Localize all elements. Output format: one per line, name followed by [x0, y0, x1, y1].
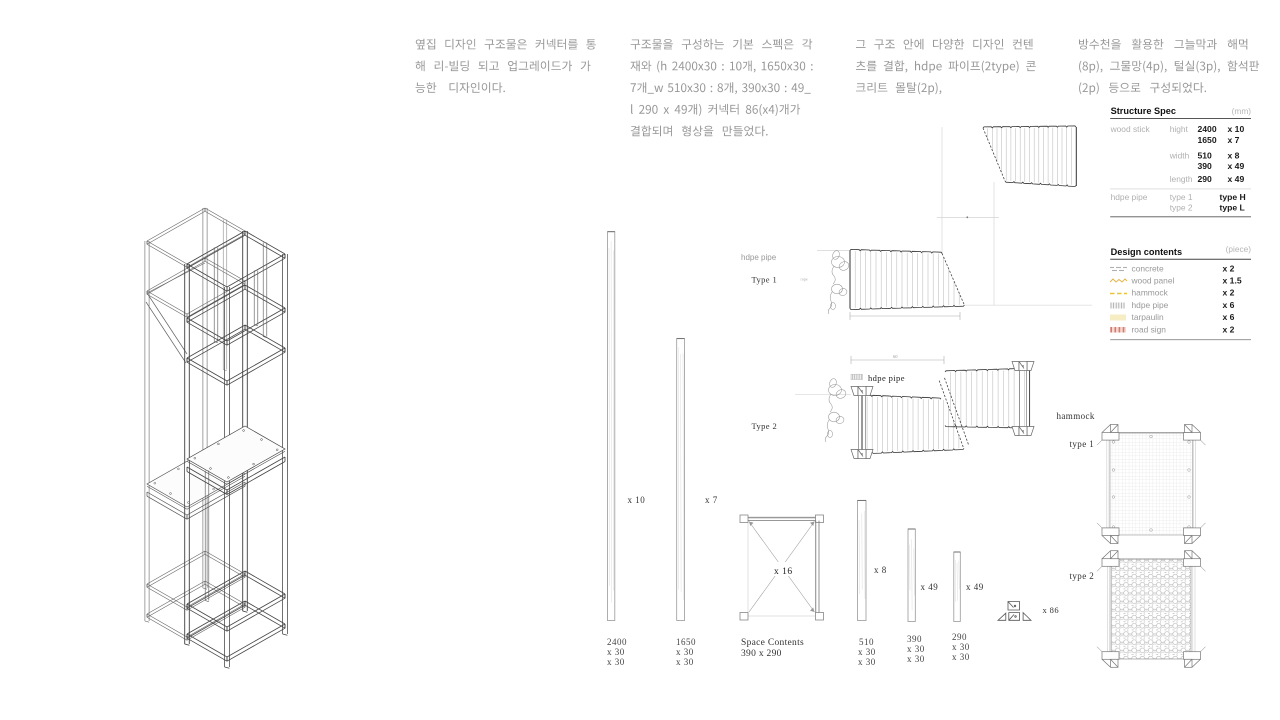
svg-text:type 1: type 1: [1170, 192, 1193, 202]
svg-text:x 30: x 30: [676, 657, 694, 667]
svg-text:type 2: type 2: [1170, 203, 1193, 213]
svg-text:(mm): (mm): [1232, 106, 1252, 116]
svg-text:x 6: x 6: [1223, 312, 1235, 322]
svg-text:290: 290: [1198, 174, 1213, 184]
svg-text:hdpe pipe: hdpe pipe: [868, 373, 905, 383]
svg-text:290: 290: [952, 632, 967, 642]
svg-text:Type 1: Type 1: [752, 275, 778, 285]
svg-text:hdpe pipe: hdpe pipe: [1111, 192, 1148, 202]
svg-text:x 30: x 30: [676, 647, 694, 657]
svg-text:hdpe pipe: hdpe pipe: [741, 253, 777, 262]
svg-text:60: 60: [893, 354, 898, 359]
svg-text:x 30: x 30: [607, 657, 625, 667]
svg-text:type 1: type 1: [1070, 439, 1095, 449]
svg-text:1650: 1650: [676, 637, 696, 647]
svg-text:390: 390: [907, 634, 922, 644]
svg-text:type H: type H: [1220, 192, 1246, 202]
svg-text:x 30: x 30: [952, 642, 970, 652]
svg-text:(piece): (piece): [1226, 244, 1252, 254]
svg-text:x 49: x 49: [966, 582, 984, 592]
svg-text:length: length: [1170, 174, 1193, 184]
svg-text:rope: rope: [801, 277, 808, 282]
svg-text:width: width: [1169, 151, 1190, 161]
svg-text:2400: 2400: [1198, 124, 1217, 134]
svg-text:Structure Spec: Structure Spec: [1111, 106, 1176, 116]
svg-text:390: 390: [1198, 161, 1213, 171]
svg-text:x 30: x 30: [952, 652, 970, 662]
svg-text:1650: 1650: [1198, 135, 1217, 145]
svg-text:x 7: x 7: [1228, 135, 1240, 145]
svg-text:x 7: x 7: [705, 495, 718, 505]
svg-text:concrete: concrete: [1132, 264, 1164, 274]
svg-text:x 30: x 30: [907, 654, 925, 664]
svg-text:x 30: x 30: [607, 647, 625, 657]
svg-text:hammock: hammock: [1132, 288, 1169, 298]
svg-text:x 6: x 6: [1223, 300, 1235, 310]
svg-text:510: 510: [1198, 151, 1213, 161]
svg-text:tarpaulin: tarpaulin: [1132, 312, 1164, 322]
svg-text:road sign: road sign: [1132, 325, 1167, 335]
svg-text:x 30: x 30: [858, 657, 876, 667]
svg-text:Space Contents: Space Contents: [741, 638, 804, 648]
svg-text:Type 2: Type 2: [752, 421, 778, 431]
svg-text:x 1.5: x 1.5: [1223, 276, 1242, 286]
svg-text:wood panel: wood panel: [1131, 276, 1175, 286]
svg-text:x 86: x 86: [1043, 605, 1059, 615]
svg-text:x 2: x 2: [1223, 288, 1235, 298]
svg-text:wood stick: wood stick: [1110, 124, 1151, 134]
svg-text:x 10: x 10: [1228, 124, 1245, 134]
svg-text:390 x 290: 390 x 290: [741, 649, 782, 659]
svg-text:x 8: x 8: [874, 565, 887, 575]
svg-text:x 49: x 49: [1228, 161, 1245, 171]
svg-text:x 49: x 49: [921, 582, 939, 592]
svg-text:hdpe pipe: hdpe pipe: [1132, 300, 1169, 310]
svg-text:x 2: x 2: [1223, 264, 1235, 274]
svg-text:hight: hight: [1170, 124, 1189, 134]
svg-text:x 16: x 16: [774, 567, 793, 577]
svg-text:x 2: x 2: [1223, 325, 1235, 335]
svg-text:510: 510: [859, 637, 874, 647]
svg-text:hammock: hammock: [1057, 411, 1095, 421]
svg-text:x 8: x 8: [1228, 151, 1240, 161]
svg-text:type L: type L: [1220, 203, 1245, 213]
svg-text:type 2: type 2: [1070, 571, 1095, 581]
svg-text:x 49: x 49: [1228, 174, 1245, 184]
svg-text:2400: 2400: [607, 637, 627, 647]
svg-text:x 10: x 10: [628, 495, 646, 505]
svg-text:x 30: x 30: [858, 647, 876, 657]
svg-text:x 30: x 30: [907, 644, 925, 654]
svg-text:Design contents: Design contents: [1111, 247, 1182, 257]
